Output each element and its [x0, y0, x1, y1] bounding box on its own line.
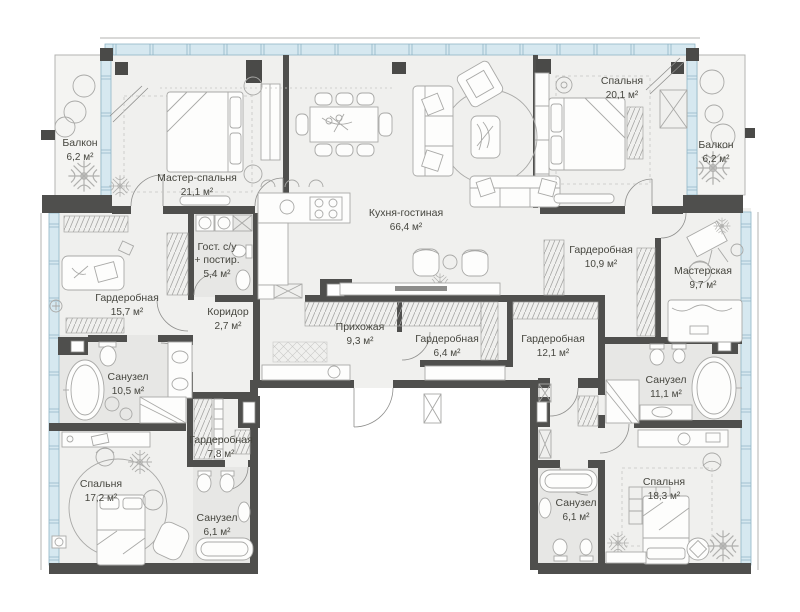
- room-area-master: 21,1 м²: [181, 187, 214, 198]
- room-area-hallway: 9,3 м²: [347, 336, 375, 347]
- room-area-bedroom183: 18,3 м²: [648, 491, 681, 502]
- room-name-corridor: Коридор: [207, 306, 249, 318]
- room-name-wardrobe64: Гардеробная: [415, 333, 479, 345]
- room-area-bedroom172: 17,2 м²: [85, 493, 118, 504]
- room-name-bathroom61r: Санузел: [556, 497, 597, 509]
- room-area-guest-bath: 5,4 м²: [204, 269, 232, 280]
- room-area-corridor: 2,7 м²: [215, 321, 243, 332]
- room-name-kitchen: Кухня-гостиная: [369, 207, 443, 219]
- room-name-wardrobe78: Гардеробная: [189, 434, 253, 446]
- room-area-balcony-right: 6,2 м²: [703, 154, 731, 165]
- room-name-bedroom183: Спальня: [643, 476, 685, 488]
- room-area-wardrobe157: 15,7 м²: [111, 307, 144, 318]
- room-area-wardrobe109: 10,9 м²: [585, 259, 618, 270]
- room-name-master: Мастер-спальня: [157, 172, 237, 184]
- room-name-wardrobe121: Гардеробная: [521, 333, 585, 345]
- room-area-wardrobe121: 12,1 м²: [537, 348, 570, 359]
- balcony-right-floor: [697, 55, 745, 195]
- room-area-balcony-left: 6,2 м²: [67, 152, 95, 163]
- room-name-wardrobe157: Гардеробная: [95, 292, 159, 304]
- room-area-bathroom61l: 6,1 м²: [204, 527, 232, 538]
- room-name-bedroom172: Спальня: [80, 478, 122, 490]
- room-area-kitchen: 66,4 м²: [390, 222, 423, 233]
- room-area-bedroom201: 20,1 м²: [606, 90, 639, 101]
- room-name-bathroom105: Санузел: [108, 371, 149, 383]
- room-area-bathroom61r: 6,1 м²: [563, 512, 591, 523]
- room-name-wardrobe109: Гардеробная: [569, 244, 633, 256]
- room-name-balcony-right: Балкон: [698, 139, 733, 151]
- room-name-guest-bath: Гост. с/у: [198, 241, 238, 253]
- room-area-wardrobe64: 6,4 м²: [434, 348, 462, 359]
- floor-plan-page: Балкон 6,2 м² Мастер-спальня 21,1 м² Кух…: [0, 0, 800, 612]
- room-area-bathroom111: 11,1 м²: [650, 389, 682, 400]
- room-area-bathroom105: 10,5 м²: [112, 386, 145, 397]
- room-name-hallway: Прихожая: [336, 321, 385, 333]
- room-name-bathroom61l: Санузел: [197, 512, 238, 524]
- floor-plan: Балкон 6,2 м² Мастер-спальня 21,1 м² Кух…: [0, 0, 800, 612]
- room-area-wardrobe78: 7,8 м²: [208, 449, 236, 460]
- room-area-workshop: 9,7 м²: [690, 280, 718, 291]
- entrance-lobby-floor: [258, 388, 530, 570]
- room-name-bedroom201: Спальня: [601, 75, 643, 87]
- room-name-workshop: Мастерская: [674, 265, 732, 277]
- room-name-balcony-left: Балкон: [62, 137, 97, 149]
- room-name-bathroom111: Санузел: [646, 374, 687, 386]
- room-name2-guest-bath: + постир.: [194, 254, 239, 266]
